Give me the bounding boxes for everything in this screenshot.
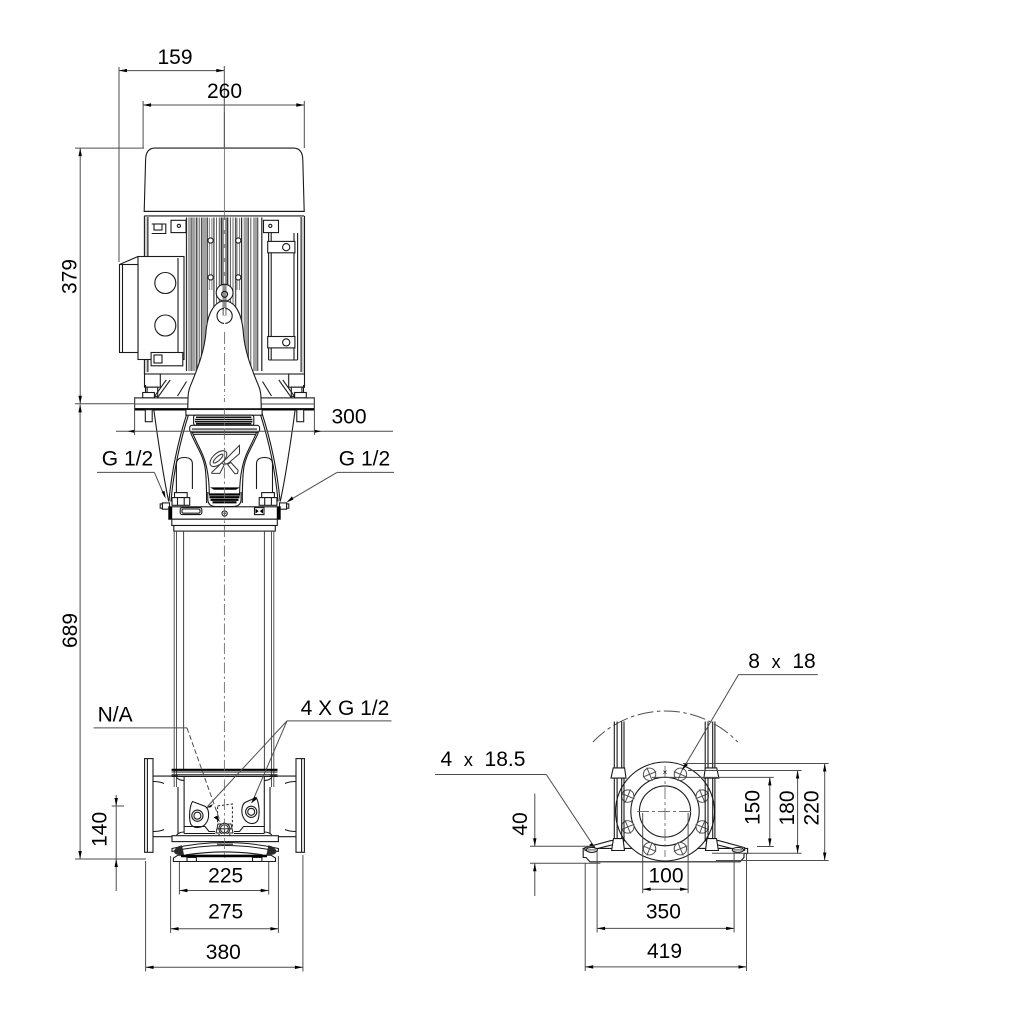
svg-text:4 X G 1/2: 4 X G 1/2 — [301, 697, 390, 720]
svg-text:8 x 18: 8 x 18 — [748, 650, 815, 673]
svg-text:689: 689 — [59, 613, 82, 648]
svg-text:419: 419 — [647, 940, 682, 963]
svg-text:300: 300 — [331, 405, 366, 428]
svg-text:×: × — [663, 768, 668, 777]
svg-text:260: 260 — [207, 80, 242, 103]
svg-text:140: 140 — [89, 812, 112, 847]
svg-text:380: 380 — [206, 941, 241, 964]
svg-text:220: 220 — [801, 790, 824, 825]
svg-text:225: 225 — [208, 864, 243, 887]
svg-text:150: 150 — [742, 790, 765, 825]
svg-text:40: 40 — [509, 812, 532, 835]
svg-text:4 x 18.5: 4 x 18.5 — [441, 748, 526, 771]
svg-text:350: 350 — [646, 901, 681, 924]
svg-text:180: 180 — [776, 790, 799, 825]
svg-text:G 1/2: G 1/2 — [339, 447, 390, 470]
svg-text:159: 159 — [157, 46, 192, 69]
svg-text:275: 275 — [208, 901, 243, 924]
svg-text:N/A: N/A — [98, 704, 133, 727]
svg-text:G 1/2: G 1/2 — [102, 447, 153, 470]
svg-text:100: 100 — [648, 865, 683, 888]
svg-text:379: 379 — [59, 259, 82, 294]
